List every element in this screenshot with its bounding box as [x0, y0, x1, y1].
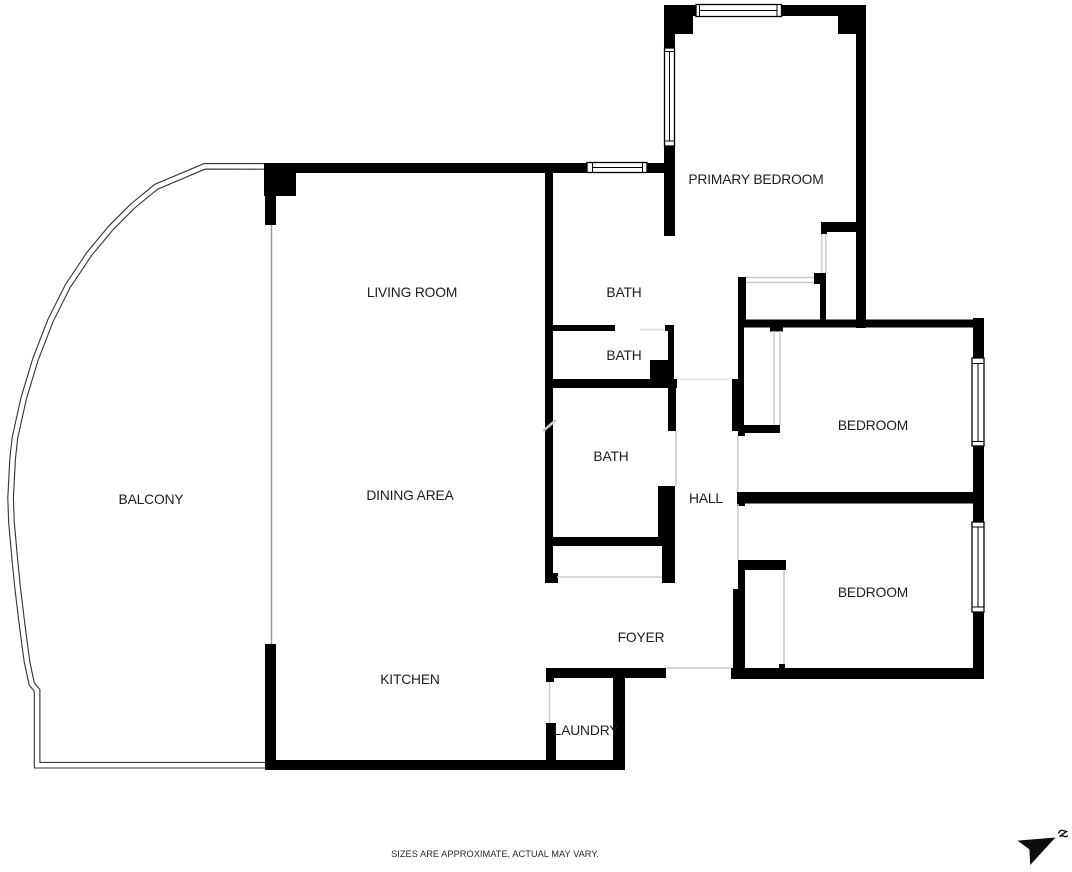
- svg-text:DINING AREA: DINING AREA: [366, 488, 454, 503]
- svg-text:HALL: HALL: [689, 491, 723, 506]
- svg-text:BATH: BATH: [606, 348, 641, 363]
- svg-text:FOYER: FOYER: [618, 630, 665, 645]
- svg-text:BEDROOM: BEDROOM: [838, 585, 908, 600]
- svg-text:LIVING ROOM: LIVING ROOM: [367, 285, 457, 300]
- svg-text:KITCHEN: KITCHEN: [380, 672, 440, 687]
- svg-text:PRIMARY BEDROOM: PRIMARY BEDROOM: [688, 172, 823, 187]
- svg-text:SIZES ARE APPROXIMATE, ACTUAL: SIZES ARE APPROXIMATE, ACTUAL MAY VARY.: [391, 849, 599, 859]
- svg-text:BATH: BATH: [606, 285, 641, 300]
- svg-text:BEDROOM: BEDROOM: [838, 418, 908, 433]
- svg-text:BALCONY: BALCONY: [119, 492, 184, 507]
- svg-text:BATH: BATH: [593, 449, 628, 464]
- svg-text:LAUNDRY: LAUNDRY: [554, 723, 619, 738]
